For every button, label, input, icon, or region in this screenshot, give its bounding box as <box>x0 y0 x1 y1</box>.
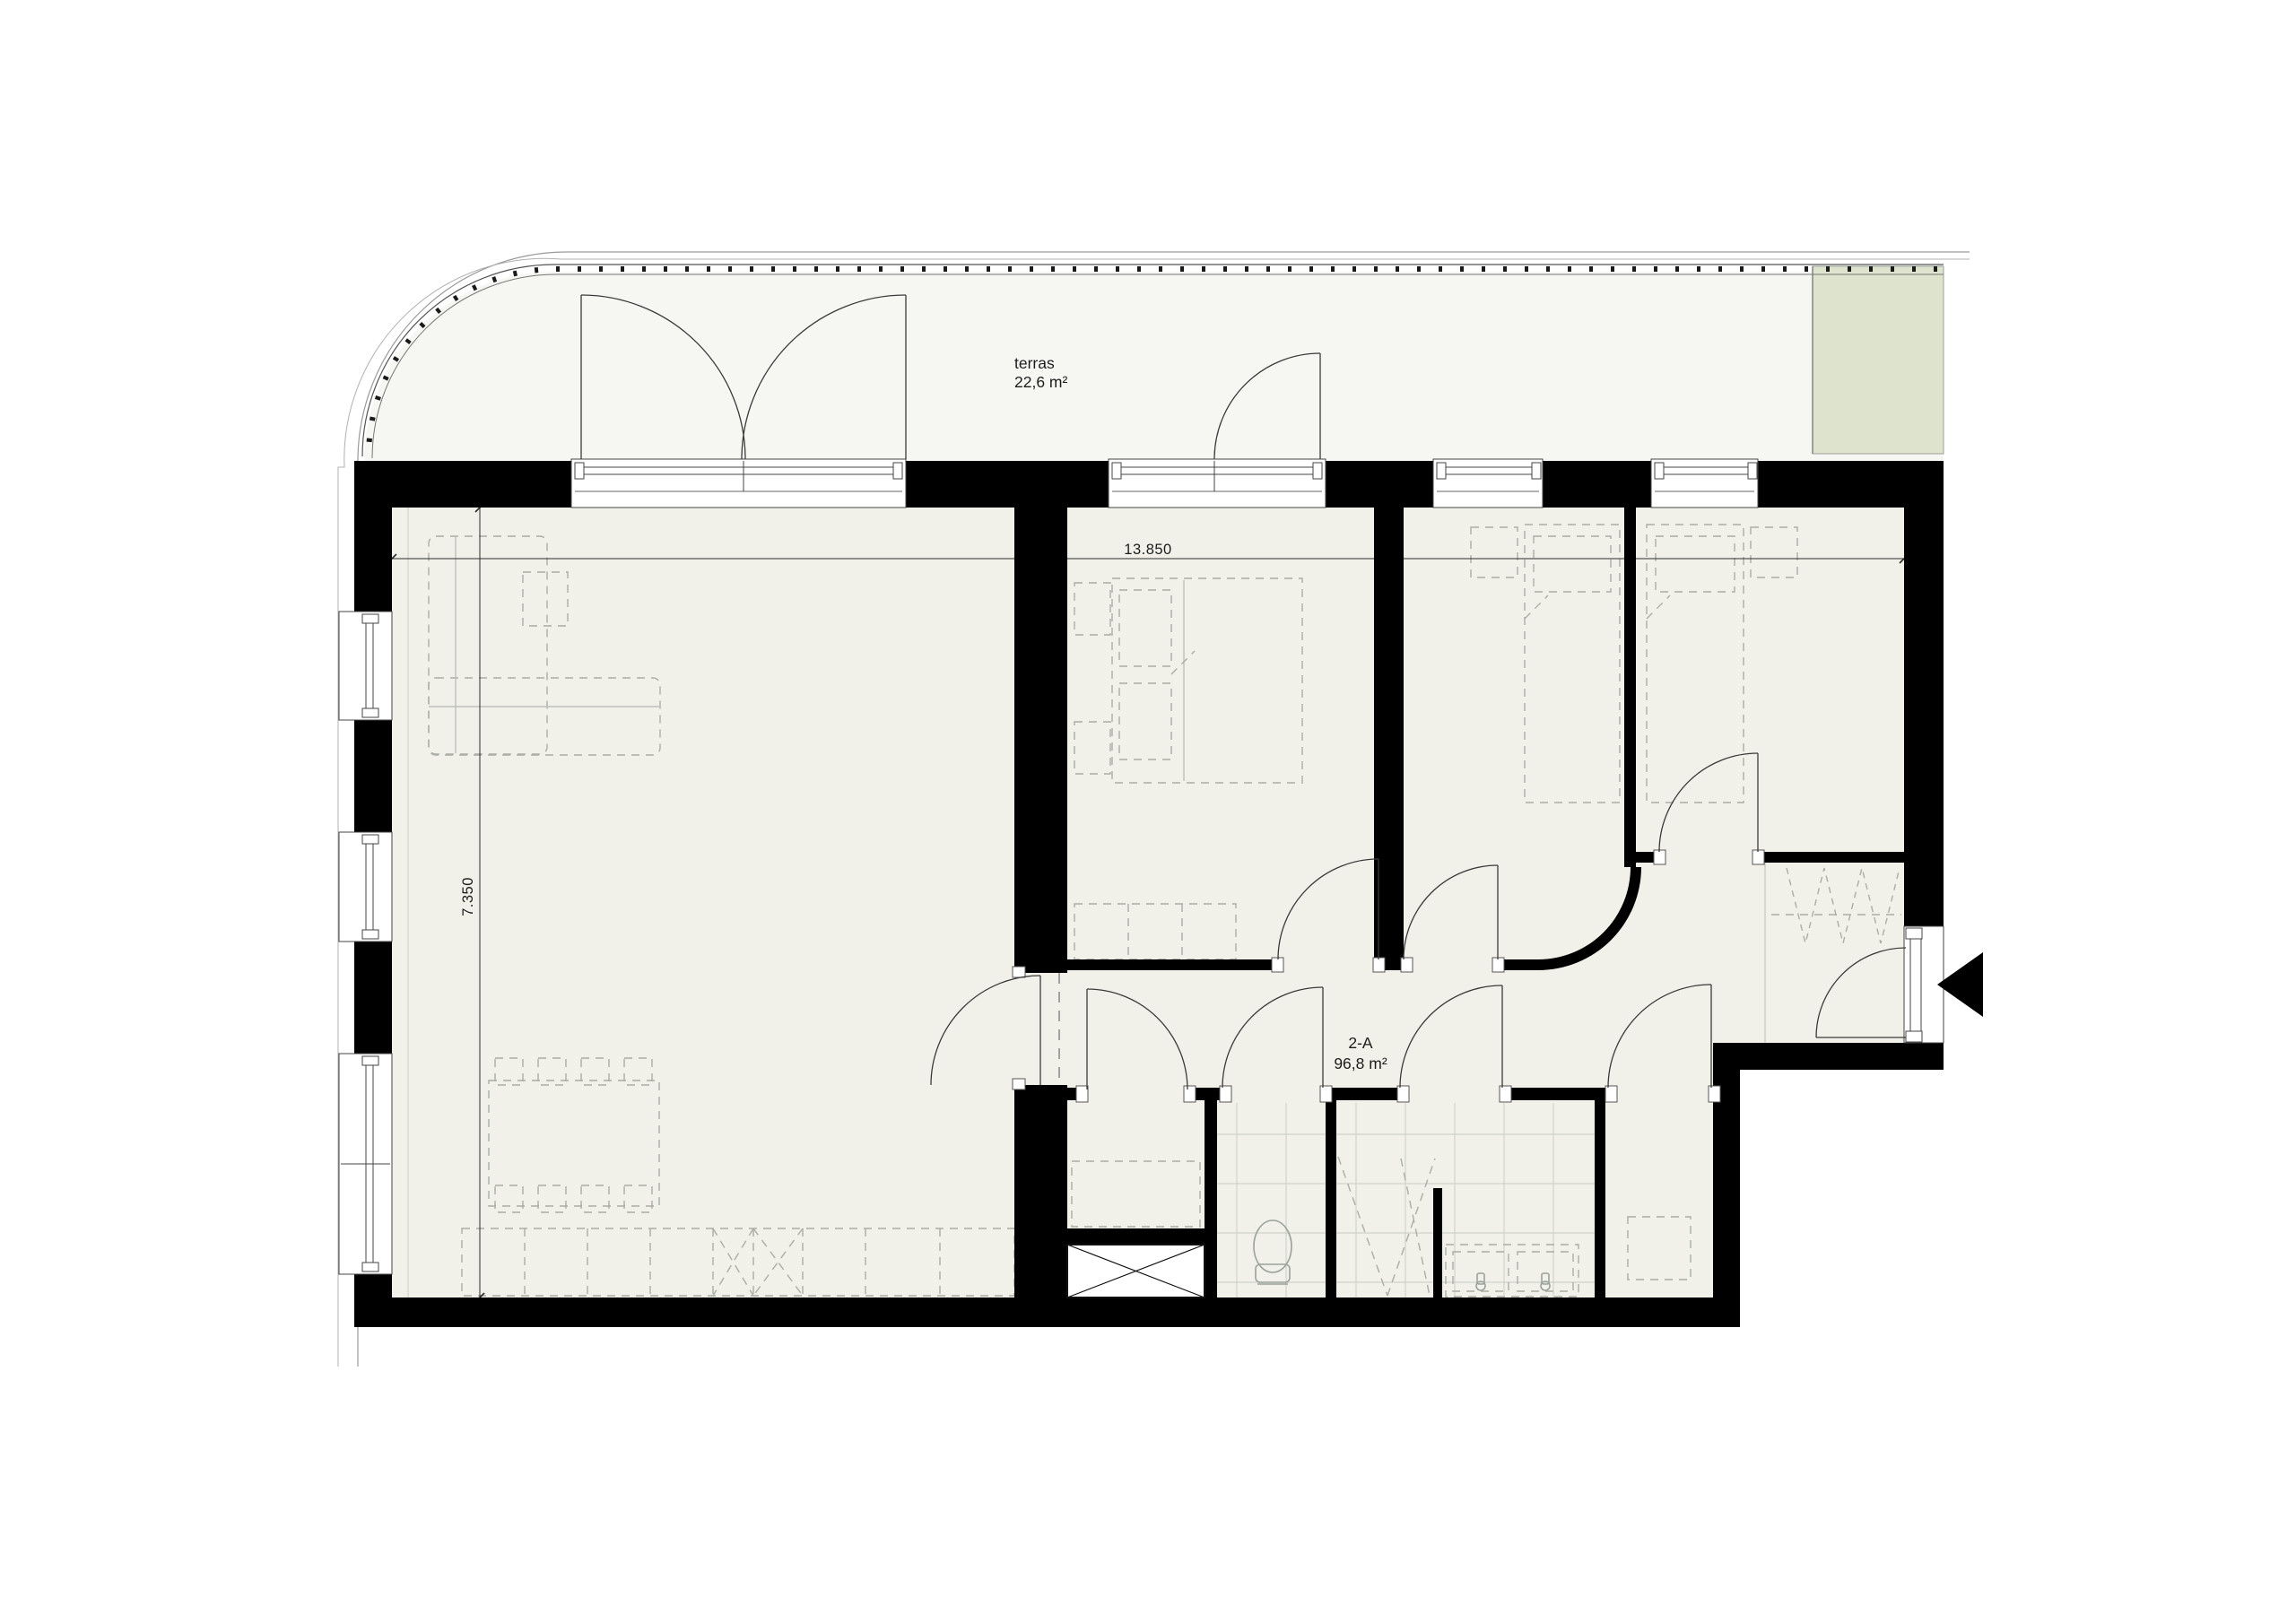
dimension-vertical: 7.350 <box>460 877 476 916</box>
living-room-window <box>571 459 906 508</box>
left-window-2 <box>339 832 392 942</box>
dimension-horizontal: 13.850 <box>1124 542 1171 558</box>
left-window-1 <box>339 612 392 720</box>
left-window-3 <box>339 1054 392 1274</box>
terrace-floor <box>364 272 1944 461</box>
apartment-area-label: 96,8 m² <box>1334 1055 1387 1072</box>
terrace-area: 22,6 m² <box>1014 373 1067 391</box>
apartment-floor <box>392 508 1904 1298</box>
floor-plan-canvas: terras 22,6 m² 2-A 96,8 m² 13.850 7.350 <box>0 0 2296 1623</box>
terrace-planter <box>1813 266 1944 454</box>
apartment-unit-label: 2-A <box>1348 1034 1373 1052</box>
terrace-label: terras <box>1014 354 1055 372</box>
master-bedroom-window <box>1109 459 1326 508</box>
bedroom3-window <box>1651 459 1758 508</box>
shaft-box <box>1067 1245 1205 1298</box>
bedroom2-window <box>1433 459 1543 508</box>
entrance-arrow-icon <box>1937 952 1983 1017</box>
floor-plan-drawing: terras 22,6 m² 2-A 96,8 m² 13.850 7.350 <box>0 0 2296 1623</box>
